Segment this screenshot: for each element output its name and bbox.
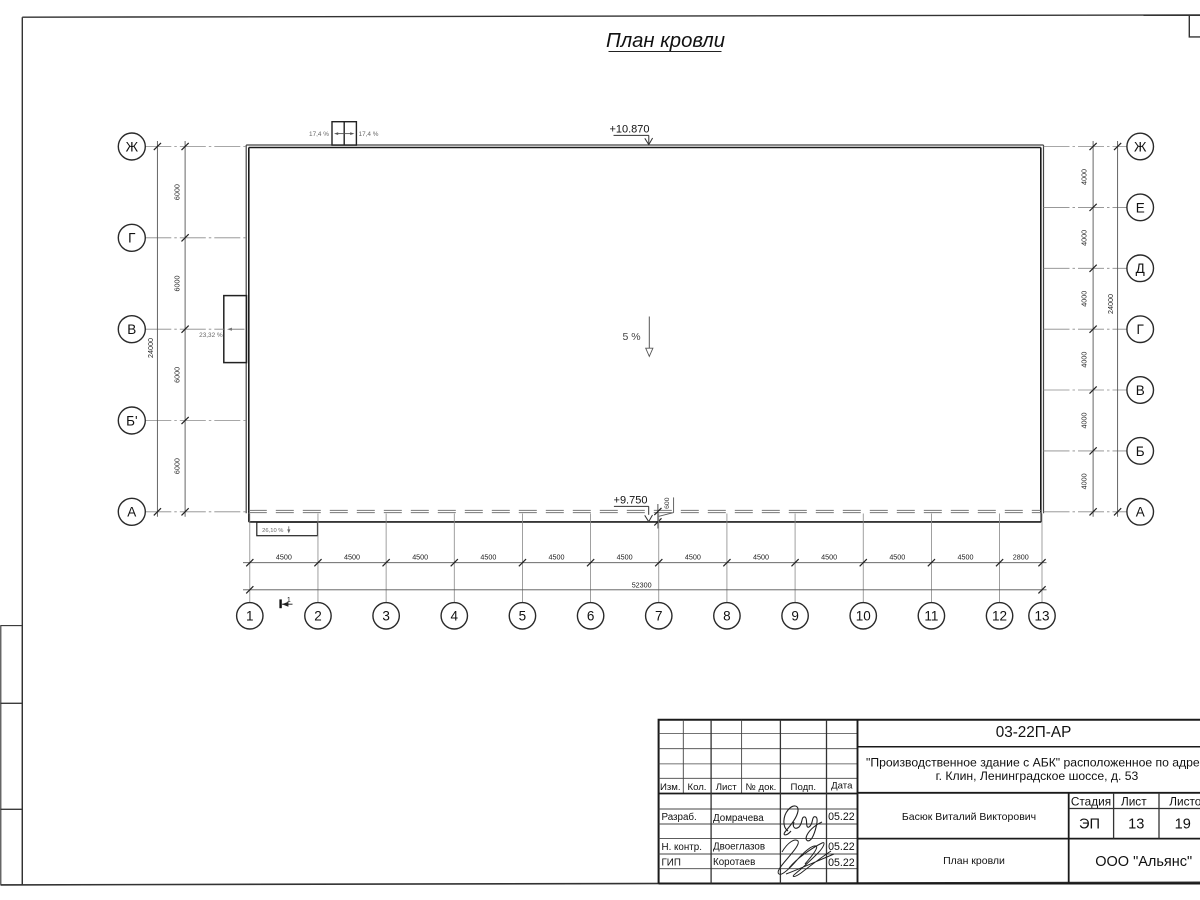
- svg-text:7: 7: [655, 609, 663, 624]
- svg-text:4500: 4500: [344, 553, 360, 562]
- svg-text:Г: Г: [128, 231, 136, 246]
- svg-text:4000: 4000: [1080, 473, 1089, 489]
- svg-text:03-22П-АР: 03-22П-АР: [996, 724, 1072, 741]
- svg-text:Б: Б: [1136, 444, 1145, 459]
- svg-text:Домрачева: Домрачева: [713, 813, 764, 824]
- svg-text:24000: 24000: [1106, 294, 1115, 314]
- svg-text:4000: 4000: [1080, 169, 1089, 185]
- svg-text:05.22: 05.22: [828, 841, 855, 853]
- svg-text:План кровли: План кровли: [943, 855, 1005, 867]
- svg-text:4500: 4500: [412, 553, 428, 562]
- svg-text:12: 12: [992, 609, 1007, 624]
- svg-text:В: В: [1136, 383, 1145, 398]
- svg-text:Ж: Ж: [126, 139, 139, 154]
- svg-text:17,4 %: 17,4 %: [359, 131, 379, 138]
- svg-text:4: 4: [451, 609, 459, 624]
- svg-text:1: 1: [246, 609, 254, 624]
- svg-text:№ док.: № док.: [746, 782, 777, 793]
- svg-text:4500: 4500: [480, 553, 496, 562]
- svg-text:6000: 6000: [173, 458, 182, 474]
- svg-text:23,32 %: 23,32 %: [199, 332, 223, 339]
- svg-text:Н. контр.: Н. контр.: [662, 842, 702, 853]
- svg-text:05.22: 05.22: [828, 857, 855, 869]
- svg-text:600: 600: [664, 497, 671, 509]
- svg-text:8: 8: [723, 609, 731, 624]
- svg-text:А: А: [127, 505, 136, 520]
- svg-text:+9.750: +9.750: [614, 495, 648, 507]
- svg-text:Стадия: Стадия: [1071, 794, 1111, 808]
- svg-text:Коротаев: Коротаев: [713, 857, 755, 868]
- svg-text:Двоеглазов: Двоеглазов: [713, 841, 765, 852]
- svg-text:Дата: Дата: [831, 781, 853, 792]
- svg-text:4500: 4500: [753, 553, 769, 562]
- svg-text:6000: 6000: [173, 184, 182, 200]
- svg-text:10: 10: [856, 609, 871, 624]
- svg-text:Разраб.: Разраб.: [662, 812, 697, 823]
- svg-text:5: 5: [519, 609, 527, 624]
- svg-text:г. Клин, Ленинградское шоссе,: г. Клин, Ленинградское шоссе, д. 53: [936, 769, 1139, 783]
- svg-text:Ж: Ж: [1134, 139, 1147, 154]
- svg-text:4000: 4000: [1080, 291, 1089, 307]
- svg-text:Подп.: Подп.: [791, 782, 816, 793]
- svg-text:13: 13: [1034, 609, 1049, 624]
- svg-text:Кол.: Кол.: [688, 782, 707, 793]
- svg-text:05.22: 05.22: [828, 811, 855, 823]
- svg-text:Б': Б': [126, 413, 137, 428]
- svg-text:Листов: Листов: [1169, 794, 1200, 808]
- svg-text:Е: Е: [1136, 200, 1145, 215]
- svg-text:4500: 4500: [276, 553, 292, 562]
- svg-text:ГИП: ГИП: [662, 858, 681, 869]
- svg-text:+10.870: +10.870: [609, 124, 649, 136]
- svg-text:4000: 4000: [1080, 230, 1089, 246]
- svg-text:17,4 %: 17,4 %: [309, 131, 329, 138]
- svg-text:3: 3: [382, 609, 390, 624]
- svg-text:4000: 4000: [1080, 412, 1089, 428]
- svg-text:4500: 4500: [549, 553, 565, 562]
- svg-text:5 %: 5 %: [622, 331, 640, 343]
- svg-text:"Производственное здание с АБК: "Производственное здание с АБК" располож…: [866, 756, 1200, 770]
- svg-text:11: 11: [924, 609, 938, 624]
- svg-text:План кровли: План кровли: [606, 30, 725, 52]
- svg-text:6000: 6000: [173, 367, 182, 383]
- svg-text:Изм.: Изм.: [660, 782, 681, 793]
- svg-text:26,10 %: 26,10 %: [262, 528, 283, 534]
- svg-text:ООО "Альянс": ООО "Альянс": [1095, 854, 1192, 870]
- svg-text:4000: 4000: [1080, 352, 1089, 368]
- svg-text:А: А: [1136, 505, 1145, 520]
- svg-text:4500: 4500: [889, 553, 905, 562]
- svg-text:Лист: Лист: [1121, 794, 1147, 808]
- svg-text:52300: 52300: [632, 580, 652, 589]
- svg-text:24000: 24000: [146, 338, 155, 358]
- svg-text:2800: 2800: [1013, 553, 1029, 562]
- svg-text:Г: Г: [1137, 322, 1145, 337]
- svg-text:2: 2: [314, 609, 322, 624]
- svg-text:6: 6: [587, 609, 595, 624]
- svg-text:В: В: [127, 322, 136, 337]
- svg-text:4500: 4500: [821, 553, 837, 562]
- svg-text:13: 13: [1128, 816, 1144, 832]
- svg-text:9: 9: [791, 609, 799, 624]
- svg-text:Лист: Лист: [716, 782, 737, 793]
- svg-text:4500: 4500: [617, 553, 633, 562]
- svg-text:6000: 6000: [173, 276, 182, 292]
- svg-text:Д: Д: [1136, 261, 1145, 276]
- svg-text:ЭП: ЭП: [1079, 816, 1100, 832]
- svg-text:Басюк Виталий Викторович: Басюк Виталий Викторович: [902, 811, 1036, 823]
- svg-text:4500: 4500: [685, 553, 701, 562]
- svg-text:4500: 4500: [957, 553, 973, 562]
- svg-text:1: 1: [287, 597, 291, 604]
- svg-text:19: 19: [1175, 816, 1191, 832]
